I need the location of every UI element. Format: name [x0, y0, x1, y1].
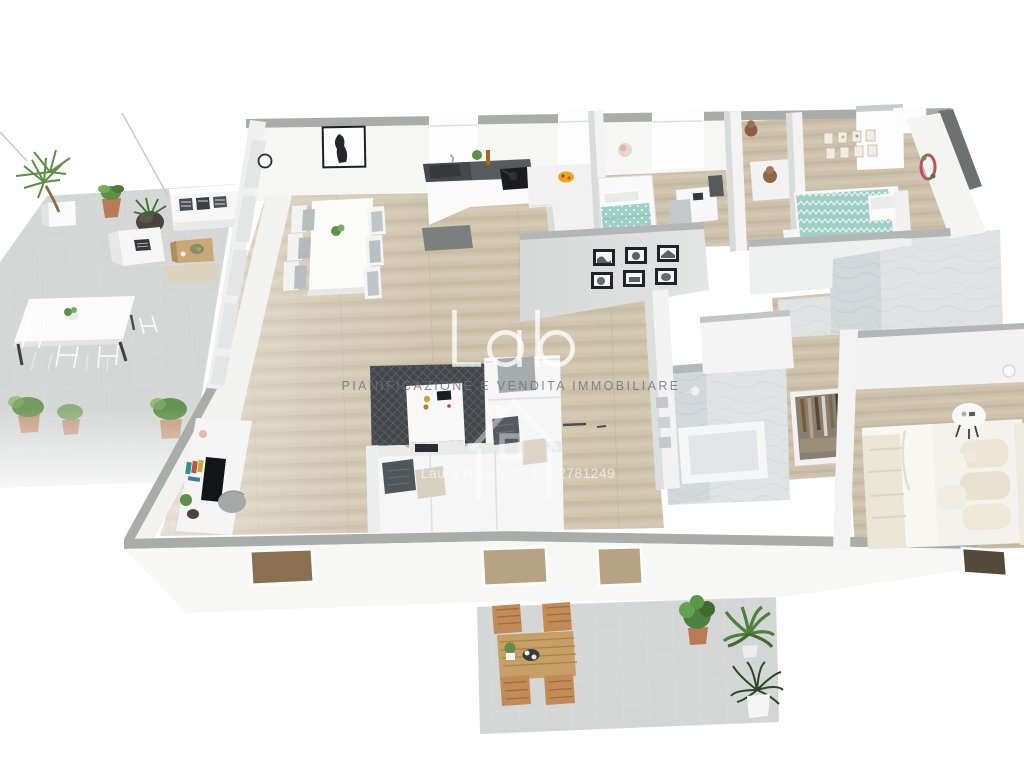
- svg-text:Laura Rocchetti 370.2781249: Laura Rocchetti 370.2781249: [421, 465, 616, 481]
- svg-text:PIANIFICAZIONE E VENDITA IM: PIANIFICAZIONE E VENDITA IMMOBILIARE: [342, 379, 681, 393]
